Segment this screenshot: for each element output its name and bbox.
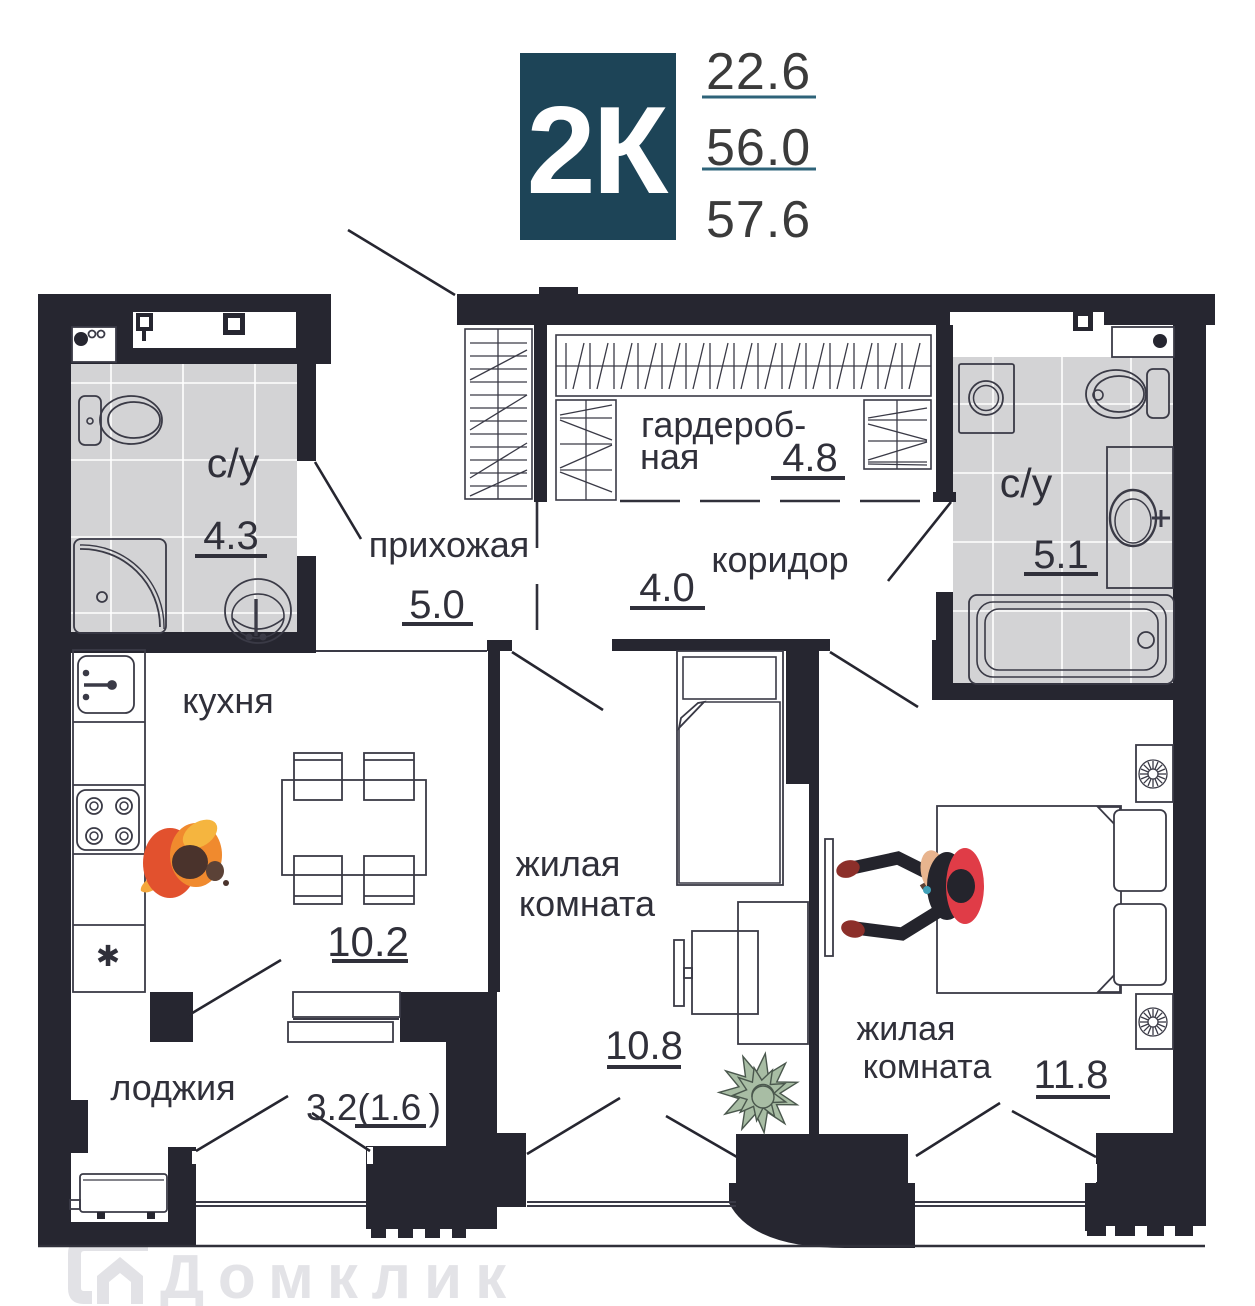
svg-text:3.2(1.6 ): 3.2(1.6 )	[306, 1087, 441, 1128]
svg-text:комната: комната	[863, 1048, 992, 1086]
svg-text:Домклик: Домклик	[160, 1243, 519, 1306]
svg-text:жилая: жилая	[857, 1010, 956, 1048]
svg-text:кухня: кухня	[182, 680, 274, 721]
svg-text:коридор: коридор	[711, 539, 848, 580]
svg-text:4.3: 4.3	[203, 514, 259, 558]
svg-text:11.8: 11.8	[1034, 1053, 1109, 1097]
svg-text:прихожая: прихожая	[369, 524, 529, 565]
svg-text:ная: ная	[640, 436, 699, 477]
svg-text:10.2: 10.2	[327, 918, 409, 965]
svg-text:лоджия: лоджия	[110, 1067, 235, 1108]
svg-text:жилая: жилая	[516, 843, 621, 884]
svg-text:с/у: с/у	[1000, 460, 1053, 506]
svg-text:✱: ✱	[96, 941, 120, 973]
svg-text:10.8: 10.8	[605, 1024, 683, 1068]
svg-text:5.1: 5.1	[1033, 533, 1089, 577]
svg-text:57.6: 57.6	[706, 191, 811, 249]
svg-text:5.0: 5.0	[409, 583, 465, 627]
svg-text:2К: 2К	[527, 82, 669, 220]
svg-text:22.6: 22.6	[706, 43, 811, 101]
svg-text:комната: комната	[519, 883, 656, 924]
svg-text:с/у: с/у	[207, 440, 260, 486]
svg-text:4.0: 4.0	[639, 566, 695, 610]
svg-text:4.8: 4.8	[782, 436, 838, 480]
